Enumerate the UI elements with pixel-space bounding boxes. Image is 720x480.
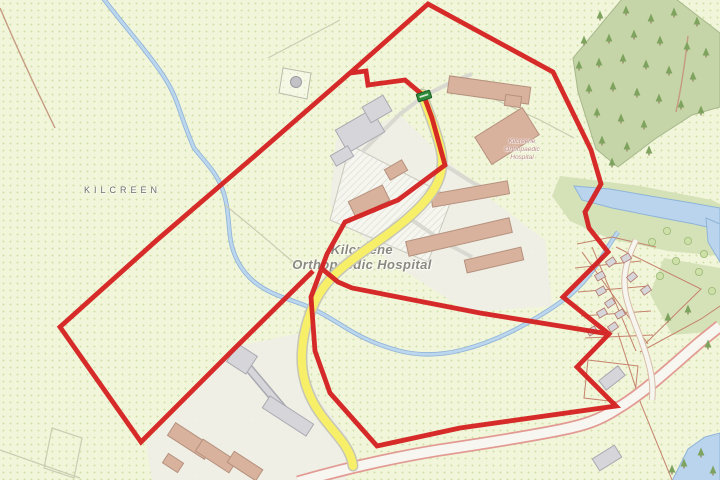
map-canvas[interactable]: KILCREEN Kilcreene Orthopaedic Hospital … xyxy=(0,0,720,480)
property-boundary-line[interactable] xyxy=(311,4,616,446)
map-overlay-layer xyxy=(0,0,720,480)
regional-road xyxy=(302,94,442,466)
property-boundary[interactable] xyxy=(60,4,616,446)
